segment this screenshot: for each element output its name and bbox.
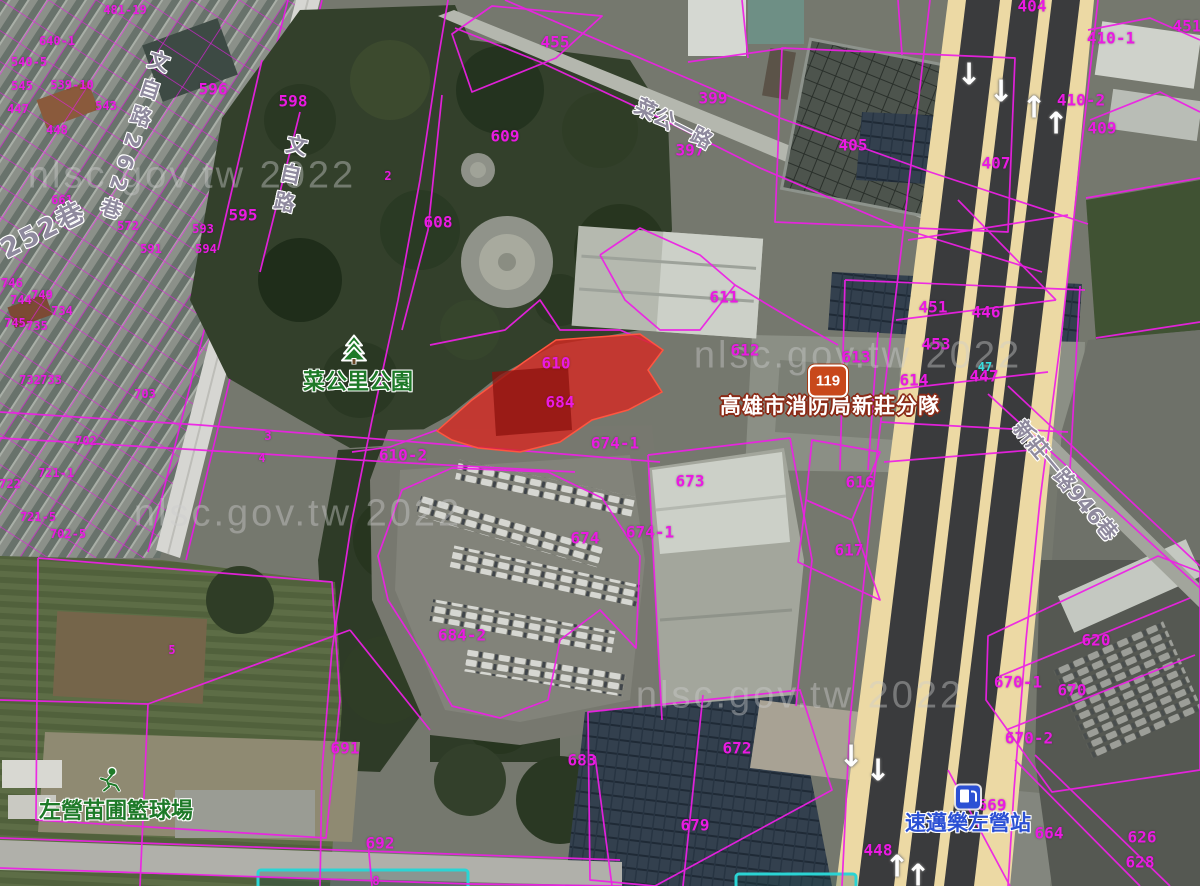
parcel-label: 407 bbox=[982, 154, 1011, 173]
parcel-label: 545 bbox=[11, 79, 33, 93]
parcel-label: 595 bbox=[229, 206, 258, 225]
traffic-direction-arrow: ↓ bbox=[865, 754, 890, 789]
parcel-label: 691 bbox=[331, 739, 360, 758]
traffic-direction-arrow: ↓ bbox=[956, 58, 981, 93]
parcel-label: 447 bbox=[7, 102, 29, 116]
parcel-label: 684-2 bbox=[438, 626, 486, 645]
parcel-label: 670-2 bbox=[1005, 729, 1053, 748]
traffic-direction-arrow: ↑ bbox=[1043, 107, 1068, 142]
parcel-label: 684 bbox=[546, 393, 575, 412]
parcel-label: 673 bbox=[676, 472, 705, 491]
parcel-label: 620 bbox=[1082, 631, 1111, 650]
parcel-label: 446 bbox=[972, 303, 1001, 322]
parcel-label: 591 bbox=[140, 242, 162, 256]
fuel-station-icon bbox=[956, 786, 980, 809]
parcel-label: 5 bbox=[168, 643, 175, 657]
parcel-label: 735 bbox=[26, 319, 48, 333]
parcel-label: 539-10 bbox=[50, 78, 93, 92]
parcel-label: 608 bbox=[424, 213, 453, 232]
parcel-label: 404 bbox=[1018, 0, 1047, 16]
parcel-label: 47 bbox=[978, 360, 992, 374]
traffic-direction-arrow: ↓ bbox=[838, 740, 863, 775]
parcel-label: 734 bbox=[51, 304, 73, 318]
poi-label: 速邁樂左營站 bbox=[905, 807, 1031, 837]
parcel-label: 702 bbox=[75, 434, 97, 448]
parcel-label: 611 bbox=[710, 288, 739, 307]
parcel-label: 405 bbox=[839, 136, 868, 155]
parcel-label: 451 bbox=[919, 298, 948, 317]
parcel-label: 2 bbox=[384, 169, 391, 183]
parcel-label: 609 bbox=[491, 127, 520, 146]
parcel-label: 674-1 bbox=[591, 434, 639, 453]
parcel-label: 746 bbox=[1, 276, 23, 290]
watermark: nlsc.gov.tw 2022 bbox=[134, 493, 462, 536]
parcel-label: 409 bbox=[1088, 119, 1117, 138]
parcel-label: 721-1 bbox=[38, 466, 74, 480]
parcel-label: 672 bbox=[723, 739, 752, 758]
parcel-label: 617 bbox=[835, 541, 864, 560]
parcel-label: 640-1 bbox=[39, 34, 75, 48]
park-tree-icon bbox=[340, 335, 368, 370]
parcel-label: 674-1 bbox=[626, 523, 674, 542]
parcel-label: 594 bbox=[195, 242, 217, 256]
parcel-label: 670 bbox=[1058, 681, 1087, 700]
parcel-label: 679 bbox=[681, 816, 710, 835]
parcel-label: 626 bbox=[1128, 828, 1157, 847]
parcel-label: 448 bbox=[46, 123, 68, 137]
route-number: 119 bbox=[816, 373, 840, 390]
route-119-shield: 119 bbox=[808, 365, 848, 398]
parcel-label: 593 bbox=[192, 222, 214, 236]
parcel-label: 610 bbox=[542, 354, 571, 373]
parcel-label: 745 bbox=[4, 316, 26, 330]
parcel-label: 612 bbox=[731, 341, 760, 360]
traffic-direction-arrow: ↑ bbox=[905, 859, 930, 886]
parcel-label: 683 bbox=[568, 751, 597, 770]
parcel-label: 664 bbox=[1035, 824, 1064, 843]
parcel-label: 4 bbox=[258, 451, 265, 465]
grass-east bbox=[1086, 180, 1200, 340]
parcel-label: 722 bbox=[0, 477, 21, 491]
parcel-label: 749 bbox=[31, 288, 53, 302]
traffic-direction-arrow: ↓ bbox=[988, 75, 1013, 110]
parcel-label: 670-1 bbox=[994, 673, 1042, 692]
parcel-label: 453 bbox=[922, 335, 951, 354]
parking-lot bbox=[370, 425, 666, 745]
parcel-label: 613 bbox=[842, 348, 871, 367]
satellite-cadastral-map[interactable]: nlsc.gov.tw 2022 nlsc.gov.tw 2022 nlsc.g… bbox=[0, 0, 1200, 886]
parcel-label: 451 bbox=[1173, 17, 1200, 36]
parcel-label: 598 bbox=[279, 92, 308, 111]
parcel-label: 610-2 bbox=[379, 446, 427, 465]
warehouse-north bbox=[572, 226, 764, 339]
watermark: nlsc.gov.tw 2022 bbox=[636, 675, 964, 718]
parcel-label: 721-5 bbox=[20, 510, 56, 524]
parcel-label: 3 bbox=[264, 429, 271, 443]
parcel-label: 616 bbox=[846, 473, 875, 492]
parcel-label: 543 bbox=[95, 99, 117, 113]
parcel-label: 540-5 bbox=[11, 55, 47, 69]
parcel-label: 703 bbox=[134, 387, 156, 401]
parcel-label: 399 bbox=[699, 89, 728, 108]
parcel-label: 732 bbox=[19, 373, 41, 387]
poi-label: 左營苗圃籃球場 bbox=[39, 793, 193, 825]
parcel-label: 8 bbox=[372, 874, 379, 886]
parcel-label: 692 bbox=[366, 834, 395, 853]
sports-court-icon bbox=[97, 767, 123, 798]
parcel-label: 410-1 bbox=[1087, 29, 1135, 48]
parcel-label: 744 bbox=[10, 293, 32, 307]
parcel-label: 596 bbox=[199, 80, 228, 99]
parcel-label: 481-19 bbox=[103, 3, 146, 17]
parcel-label: 455 bbox=[541, 33, 570, 52]
parcel-label: 702-5 bbox=[50, 527, 86, 541]
parcel-label: 614 bbox=[900, 371, 929, 390]
parcel-label: 733 bbox=[40, 373, 62, 387]
parcel-label: 628 bbox=[1126, 853, 1155, 872]
parcel-label: 674 bbox=[571, 529, 600, 548]
